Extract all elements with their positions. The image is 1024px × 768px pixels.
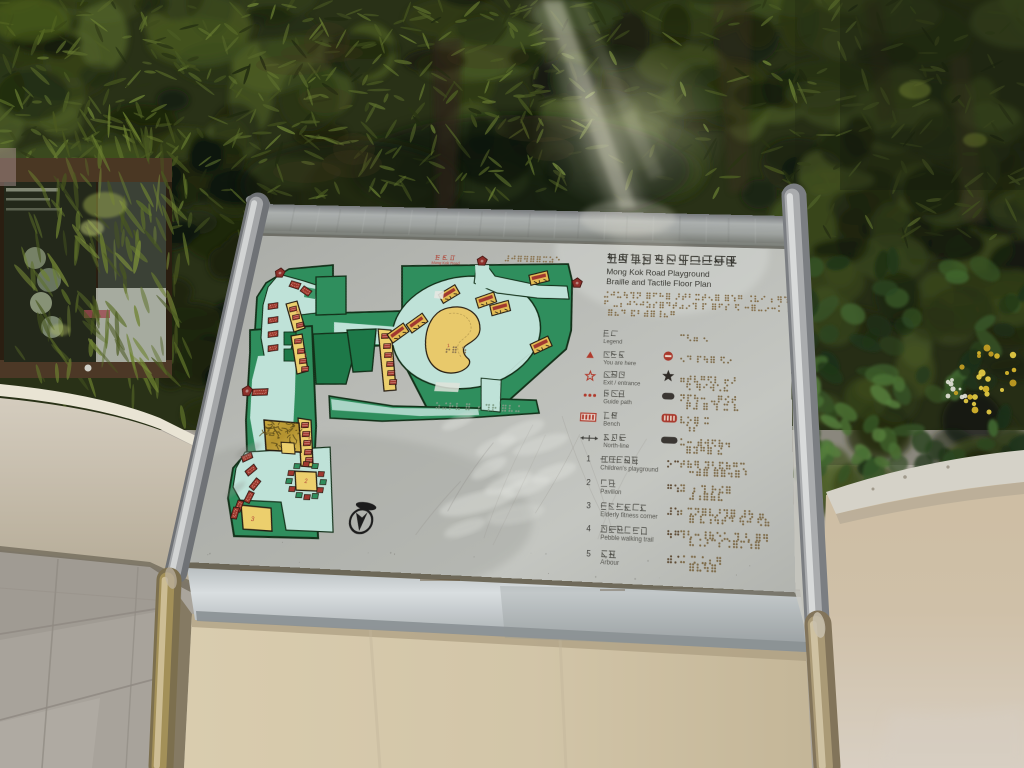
svg-text:Arbour: Arbour <box>600 559 620 568</box>
svg-text:Bench: Bench <box>603 420 620 428</box>
svg-text:You are here: You are here <box>603 359 636 367</box>
svg-text:Mong Kok Road: Mong Kok Road <box>431 260 460 265</box>
svg-text:North-line: North-line <box>603 442 630 451</box>
svg-text:Legend: Legend <box>603 338 623 346</box>
svg-text:Guide path: Guide path <box>603 398 632 406</box>
